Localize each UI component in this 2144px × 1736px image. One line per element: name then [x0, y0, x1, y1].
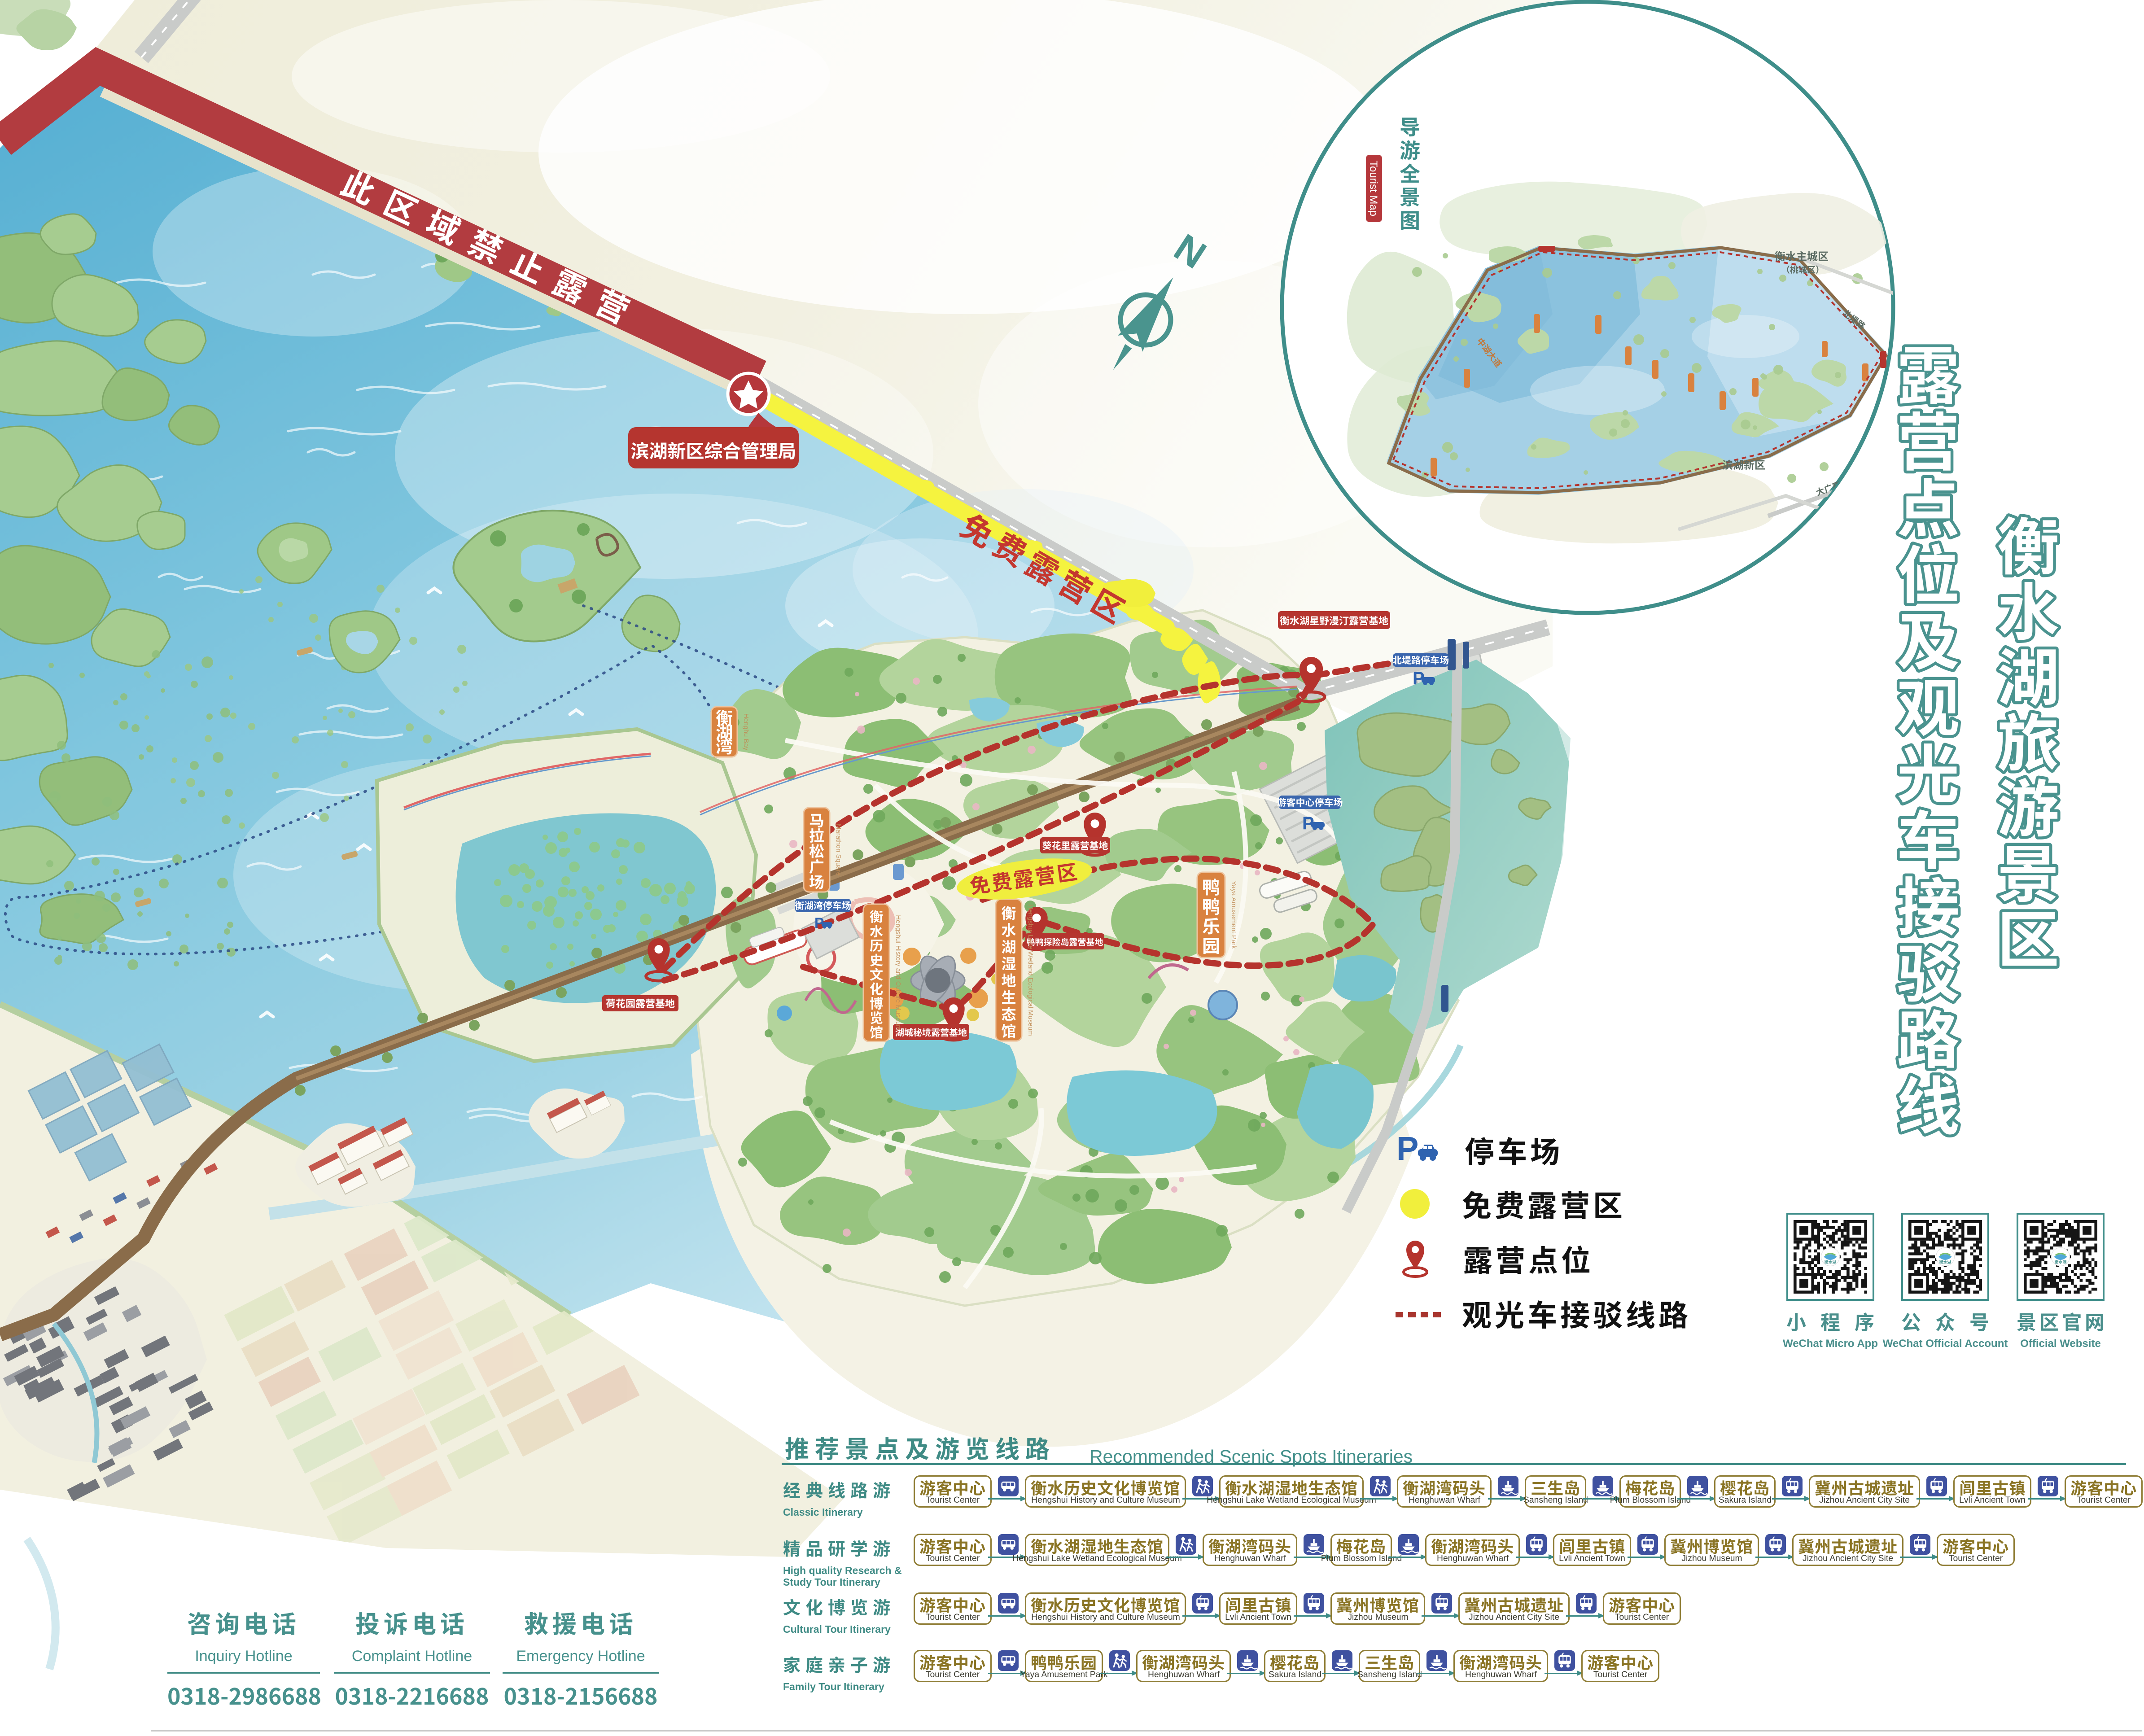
svg-text:滨湖新区综合管理局: 滨湖新区综合管理局 — [631, 436, 796, 463]
svg-text:Marathon Square: Marathon Square — [835, 824, 842, 876]
svg-text:衡水主城区: 衡水主城区 — [1775, 248, 1829, 263]
svg-text:Yaya Amusement Park: Yaya Amusement Park — [1230, 881, 1238, 949]
svg-text:滨湖新区: 滨湖新区 — [1722, 456, 1765, 472]
svg-text:衡水湖: 衡水湖 — [1939, 1259, 1951, 1265]
svg-text:馆: 馆 — [1002, 1019, 1016, 1041]
svg-text:游客中心停车场: 游客中心停车场 — [1277, 796, 1343, 809]
svg-text:葵花里露营基地: 葵花里露营基地 — [1042, 839, 1108, 853]
svg-text:衡水湖星野漫汀露营基地: 衡水湖星野漫汀露营基地 — [1280, 613, 1388, 628]
svg-text:Tourist Map: Tourist Map — [1367, 161, 1379, 216]
svg-text:鸭鸭探险岛露营基地: 鸭鸭探险岛露营基地 — [1026, 936, 1103, 948]
svg-text:馆: 馆 — [870, 1022, 883, 1041]
svg-text:园: 园 — [1202, 931, 1220, 958]
svg-text:荷花园露营基地: 荷花园露营基地 — [606, 996, 675, 1010]
svg-text:北堤路停车场: 北堤路停车场 — [1392, 653, 1449, 667]
svg-text:Henghu Bay: Henghu Bay — [742, 713, 750, 751]
svg-text:衡水湖: 衡水湖 — [2054, 1259, 2066, 1265]
svg-text:场: 场 — [809, 870, 824, 892]
svg-text:衡水湖: 衡水湖 — [1824, 1259, 1836, 1265]
svg-text:湖城秘境露营基地: 湖城秘境露营基地 — [895, 1026, 967, 1039]
svg-text:Hengshui History and Culture M: Hengshui History and Culture Museum — [894, 915, 902, 1031]
svg-text:线: 线 — [1897, 1057, 1960, 1147]
svg-text:湾: 湾 — [716, 733, 733, 758]
svg-text:衡湖湾停车场: 衡湖湾停车场 — [795, 899, 851, 912]
svg-text:Hengshui Lake Wetland Ecologic: Hengshui Lake Wetland Ecological Museum — [1027, 904, 1034, 1036]
svg-text:P: P — [1396, 1132, 1418, 1167]
svg-text:图: 图 — [1400, 205, 1420, 234]
svg-text:区: 区 — [1997, 890, 2059, 980]
svg-text:（桃城区）: （桃城区） — [1781, 263, 1824, 275]
